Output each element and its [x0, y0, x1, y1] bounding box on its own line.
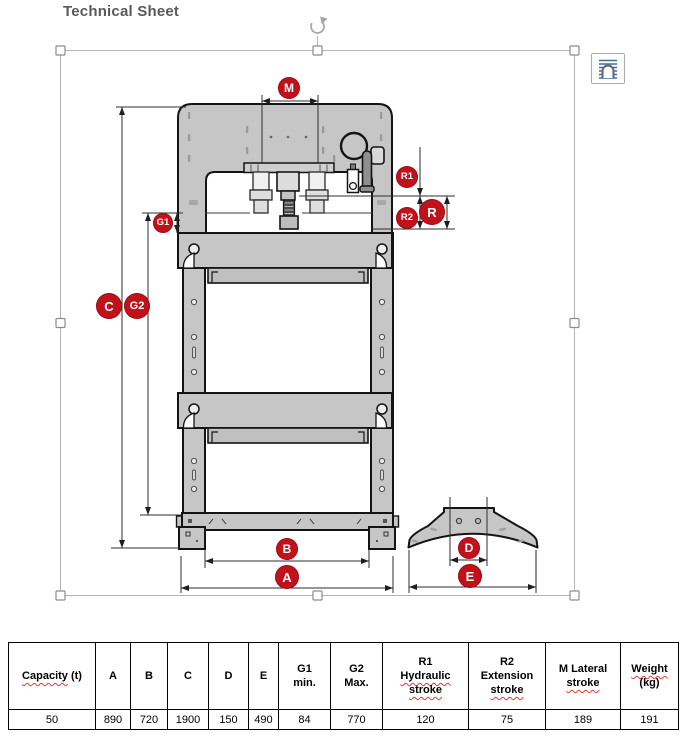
table-header-cell: D — [209, 643, 249, 710]
table-header-cell: B — [131, 643, 168, 710]
selection-handle-mid-right[interactable] — [570, 319, 579, 328]
spec-table: Capacity (t)ABCDEG1min.G2Max.R1Hydraulic… — [8, 642, 679, 730]
table-header-cell: Weight(kg) — [621, 643, 679, 710]
table-header-cell: C — [168, 643, 209, 710]
selection-handle-mid-left[interactable] — [56, 319, 65, 328]
selection-handle-bottom-center[interactable] — [313, 591, 322, 600]
rotate-handle-icon[interactable] — [308, 17, 327, 36]
table-value-cell: 84 — [279, 710, 331, 730]
table-value-cell: 75 — [469, 710, 546, 730]
table-header-cell: A — [96, 643, 131, 710]
table-header-row: Capacity (t)ABCDEG1min.G2Max.R1Hydraulic… — [9, 643, 679, 710]
v-block — [409, 508, 538, 548]
table-value-cell: 490 — [249, 710, 279, 730]
table-value-cell: 770 — [331, 710, 383, 730]
table-value-cell: 1900 — [168, 710, 209, 730]
bolster-upper — [178, 233, 392, 283]
bolster-lower — [178, 393, 392, 443]
table-header-cell: Capacity (t) — [9, 643, 96, 710]
table-value-cell: 890 — [96, 710, 131, 730]
table-value-cell: 720 — [131, 710, 168, 730]
table-value-cell: 191 — [621, 710, 679, 730]
pump-lever — [360, 151, 374, 192]
layout-options-button[interactable] — [591, 53, 625, 84]
selection-handle-top-right[interactable] — [570, 46, 579, 55]
table-value-cell: 150 — [209, 710, 249, 730]
table-value-row: 5089072019001504908477012075189191 — [9, 710, 679, 730]
table-value-cell: 120 — [383, 710, 469, 730]
selection-handle-bottom-right[interactable] — [570, 591, 579, 600]
selection-handle-bottom-left[interactable] — [56, 591, 65, 600]
base-crossbeam — [177, 513, 399, 530]
table-header-cell: M Lateralstroke — [546, 643, 621, 710]
table-header-cell: E — [249, 643, 279, 710]
press-technical-drawing[interactable] — [0, 0, 685, 640]
table-value-cell: 189 — [546, 710, 621, 730]
table-header-cell: G1min. — [279, 643, 331, 710]
table-header-cell: R2Extensionstroke — [469, 643, 546, 710]
selection-handle-top-left[interactable] — [56, 46, 65, 55]
oil-filler-plug — [371, 147, 384, 164]
selection-handle-top-center[interactable] — [313, 46, 322, 55]
table-header-cell: G2Max. — [331, 643, 383, 710]
hydraulic-ram — [277, 172, 299, 229]
table-value-cell: 50 — [9, 710, 96, 730]
layout-options-icon — [596, 57, 620, 81]
table-header-cell: R1Hydraulicstroke — [383, 643, 469, 710]
